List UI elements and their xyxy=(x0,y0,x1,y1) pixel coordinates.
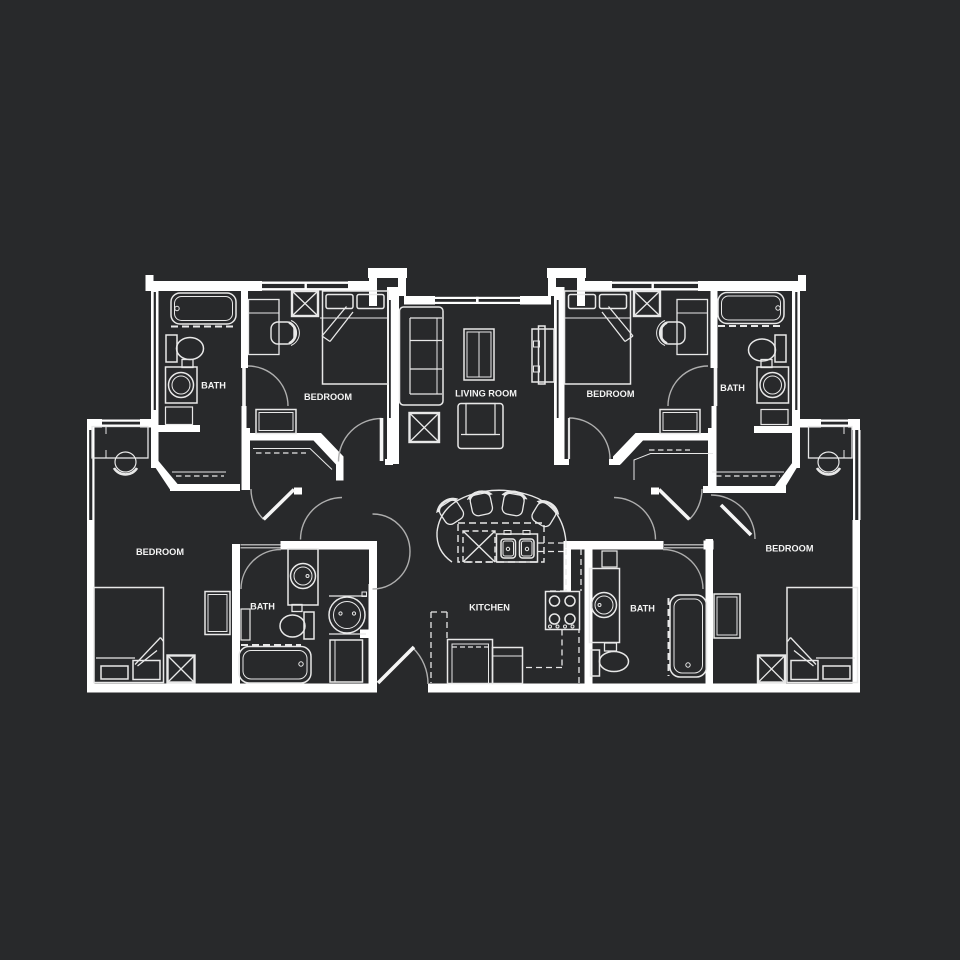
svg-text:BEDROOM: BEDROOM xyxy=(304,392,352,402)
svg-text:KITCHEN: KITCHEN xyxy=(469,603,510,613)
svg-text:BEDROOM: BEDROOM xyxy=(766,544,814,554)
svg-text:LIVING ROOM: LIVING ROOM xyxy=(455,389,517,399)
svg-text:BATH: BATH xyxy=(630,604,655,614)
svg-text:BEDROOM: BEDROOM xyxy=(587,389,635,399)
svg-text:BATH: BATH xyxy=(201,381,226,391)
svg-text:BEDROOM: BEDROOM xyxy=(136,547,184,557)
svg-text:BATH: BATH xyxy=(720,383,745,393)
svg-text:BATH: BATH xyxy=(250,602,275,612)
